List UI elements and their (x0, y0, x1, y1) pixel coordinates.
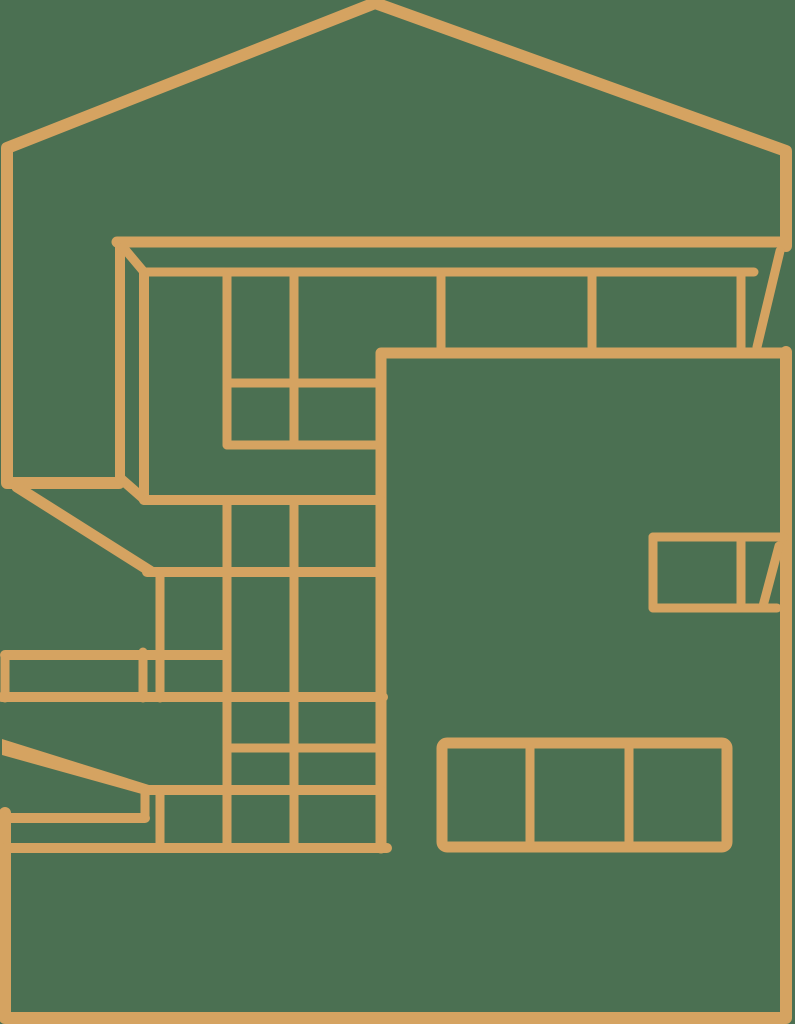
lower-roof-diagonal (17, 487, 150, 571)
house-outline (5, 3, 786, 1018)
roof-right-slope-and-right-eave-edge (375, 3, 786, 246)
mid-left-window-grid (144, 500, 380, 848)
illustration-canvas (0, 0, 795, 1024)
side-window-corner-diagonal (763, 546, 779, 606)
strip-right-corner-diagonal (757, 251, 780, 347)
roof-fascia-beam (117, 242, 786, 500)
upper-left-window-grid (227, 383, 380, 445)
house-line-art (0, 0, 795, 1024)
entry-ramp-wedge (2, 739, 149, 796)
three-pane-window-frame (442, 743, 727, 847)
right-side-corner-window (653, 537, 784, 608)
lower-right-three-pane-window (442, 743, 727, 847)
